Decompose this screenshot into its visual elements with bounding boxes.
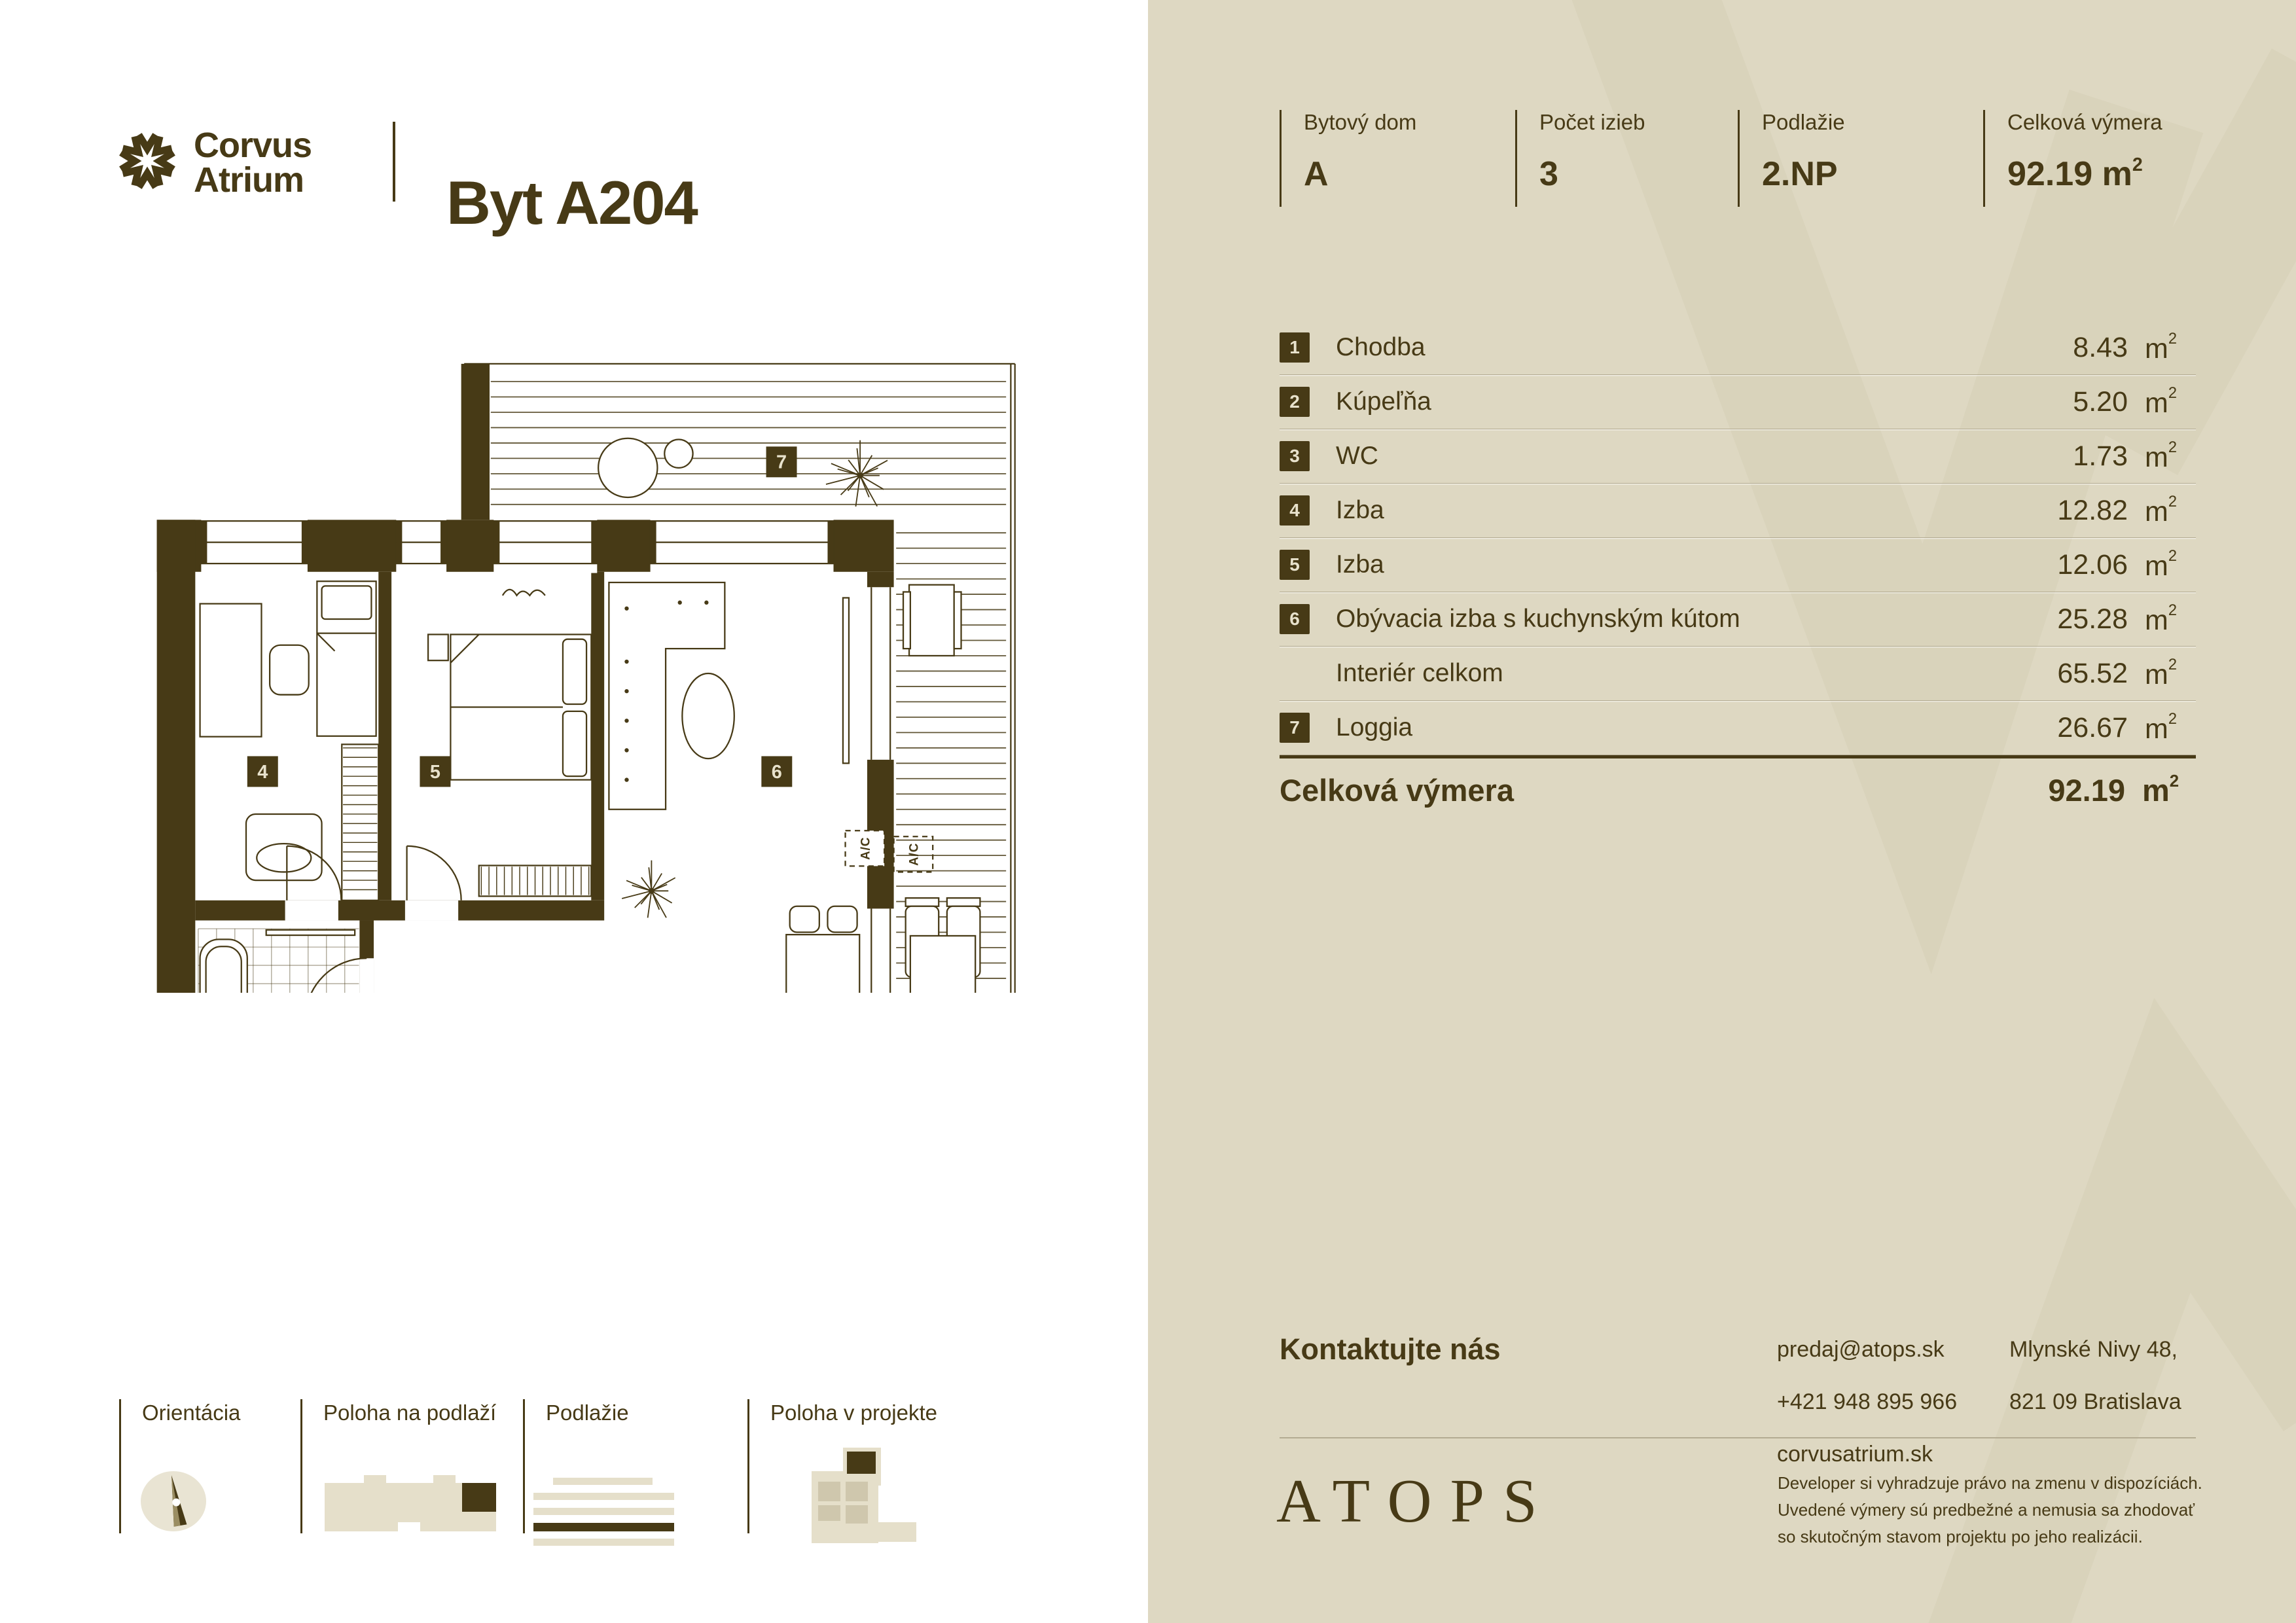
room-number-badge: 6 xyxy=(1280,604,1310,634)
room-number-badge: 4 xyxy=(1280,495,1310,526)
plan-badge-6: 6 xyxy=(772,762,782,783)
legend-label-storey: Podlažie xyxy=(546,1400,629,1425)
contact-phone: +421 948 895 966 xyxy=(1777,1376,1957,1428)
right-panel: Bytový dom A Počet izieb 3 Podlažie 2.NP… xyxy=(1148,0,2296,1623)
room-area-unit: m2 xyxy=(2128,493,2196,528)
brand-row: Corvus Atrium Byt A204 xyxy=(0,0,1148,275)
legend-bar-1 xyxy=(119,1399,121,1533)
spec-rooms-value: 3 xyxy=(1539,154,1713,194)
storey-icon xyxy=(533,1474,684,1547)
plant-living xyxy=(622,861,675,918)
table-row: 4 Izba 12.82 m2 xyxy=(1280,484,2196,538)
spec-storey: Podlažie 2.NP xyxy=(1738,110,1958,207)
legend-bar-2 xyxy=(300,1399,302,1533)
brand-name-line1: Corvus xyxy=(194,128,312,163)
plan-badge-4: 4 xyxy=(257,762,268,783)
room-name: Kúpeľňa xyxy=(1310,387,1984,416)
spec-storey-label: Podlažie xyxy=(1762,110,1958,135)
spec-total-area-value: 92.19 m2 xyxy=(2007,154,2197,194)
room-area-unit: m2 xyxy=(2128,385,2196,419)
table-row: 5 Izba 12.06 m2 xyxy=(1280,538,2196,592)
rooms-table: 1 Chodba 8.43 m2 2 Kúpeľňa 5.20 m2 3 WC … xyxy=(1280,321,2196,823)
loggia-deck-top xyxy=(491,382,1006,505)
brand-name: Corvus Atrium xyxy=(194,128,312,198)
table-row: 2 Kúpeľňa 5.20 m2 xyxy=(1280,375,2196,429)
table-row: 3 WC 1.73 m2 xyxy=(1280,429,2196,484)
contact-address-line2: 821 09 Bratislava xyxy=(2009,1376,2181,1428)
room-name: Izba xyxy=(1310,550,1984,579)
left-panel: Corvus Atrium Byt A204 xyxy=(0,0,1148,1623)
legend-label-project-position: Poloha v projekte xyxy=(770,1400,937,1425)
plan-badge-5: 5 xyxy=(430,762,440,783)
spec-storey-value: 2.NP xyxy=(1762,154,1958,194)
legend-bar-4 xyxy=(747,1399,749,1533)
rooms-table-body: 1 Chodba 8.43 m2 2 Kúpeľňa 5.20 m2 3 WC … xyxy=(1280,321,2196,755)
legend-label-floor-position: Poloha na podlaží xyxy=(323,1400,496,1425)
room-area-unit: m2 xyxy=(2128,656,2196,691)
spec-total-area: Celková výmera 92.19 m2 xyxy=(1983,110,2197,207)
room-area-unit: m2 xyxy=(2128,602,2196,637)
floor-plan-drawing: A/C A/C 1 2 3 4 5 6 7 xyxy=(124,330,1037,993)
room-area-unit: m2 xyxy=(2128,548,2196,582)
ac-label-1: A/C xyxy=(859,837,873,860)
ac-label-2: A/C xyxy=(908,843,922,866)
table-row: 6 Obývacia izba s kuchynským kútom 25.28… xyxy=(1280,592,2196,647)
contact-address: Mlynské Nivy 48, 821 09 Bratislava xyxy=(2009,1323,2181,1428)
room-area: 12.82 xyxy=(1984,495,2128,527)
room-area-unit: m2 xyxy=(2128,330,2196,365)
spec-building-label: Bytový dom xyxy=(1304,110,1494,135)
floorplan-sheet: Corvus Atrium Byt A204 xyxy=(0,0,2296,1623)
room-area: 5.20 xyxy=(1984,386,2128,418)
room-number-badge: 1 xyxy=(1280,332,1310,363)
wardrobe-room4 xyxy=(342,744,378,900)
room-number-badge: 2 xyxy=(1280,387,1310,417)
table-row: 1 Chodba 8.43 m2 xyxy=(1280,321,2196,375)
room-area-unit: m2 xyxy=(2128,711,2196,745)
contact-links: predaj@atops.sk +421 948 895 966 corvusa… xyxy=(1777,1323,1957,1480)
room-name: Obývacia izba s kuchynským kútom xyxy=(1310,605,1984,633)
compass-icon xyxy=(134,1463,213,1542)
room-area: 1.73 xyxy=(1984,440,2128,473)
room6-furniture xyxy=(609,582,867,993)
room-area-unit: m2 xyxy=(2128,439,2196,474)
apartment-title: Byt A204 xyxy=(446,172,697,234)
total-label: Celková výmera xyxy=(1280,772,2048,808)
developer-logo: ATOPS xyxy=(1276,1466,1556,1537)
room-name: Loggia xyxy=(1310,713,1984,742)
room-number-badge: 5 xyxy=(1280,550,1310,580)
project-position-icon xyxy=(805,1444,923,1547)
room-number-badge: 3 xyxy=(1280,441,1310,471)
room-name: Chodba xyxy=(1310,333,1984,362)
brand-name-line2: Atrium xyxy=(194,163,312,198)
total-unit: m2 xyxy=(2125,772,2196,808)
room5-furniture xyxy=(428,590,591,780)
spec-rooms-label: Počet izieb xyxy=(1539,110,1713,135)
table-row: 7 Loggia 26.67 m2 xyxy=(1280,701,2196,755)
spec-rooms: Počet izieb 3 xyxy=(1515,110,1713,207)
floor-position-icon xyxy=(322,1472,505,1538)
room-area: 25.28 xyxy=(1984,603,2128,635)
total-area: 92.19 xyxy=(2048,772,2125,808)
room-name: Izba xyxy=(1310,496,1984,525)
floor-plan: A/C A/C 1 2 3 4 5 6 7 xyxy=(124,330,1037,993)
corvus-star-icon xyxy=(109,115,186,207)
legend-label-orientation: Orientácia xyxy=(142,1400,240,1425)
room-name: WC xyxy=(1310,442,1984,471)
plan-badge-7: 7 xyxy=(776,452,787,473)
brand-divider xyxy=(393,122,395,202)
room-area: 65.52 xyxy=(1984,658,2128,690)
spec-building-value: A xyxy=(1304,154,1494,194)
legend-bar-3 xyxy=(523,1399,525,1533)
spec-total-area-label: Celková výmera xyxy=(2007,110,2197,135)
room-area: 12.06 xyxy=(1984,549,2128,581)
contact-address-line1: Mlynské Nivy 48, xyxy=(2009,1323,2181,1376)
spec-building: Bytový dom A xyxy=(1280,110,1494,207)
contact-title: Kontaktujte nás xyxy=(1280,1332,1501,1366)
table-row: Interiér celkom 65.52 m2 xyxy=(1280,647,2196,701)
room-number-badge: 7 xyxy=(1280,713,1310,743)
contact-email: predaj@atops.sk xyxy=(1777,1323,1957,1376)
disclaimer: Developer si vyhradzuje právo na zmenu v… xyxy=(1778,1470,2210,1550)
room-area: 26.67 xyxy=(1984,712,2128,744)
room-area: 8.43 xyxy=(1984,332,2128,364)
total-row: Celková výmera 92.19 m2 xyxy=(1280,758,2196,823)
room-name: Interiér celkom xyxy=(1310,659,1984,688)
footer-divider xyxy=(1280,1437,2196,1438)
